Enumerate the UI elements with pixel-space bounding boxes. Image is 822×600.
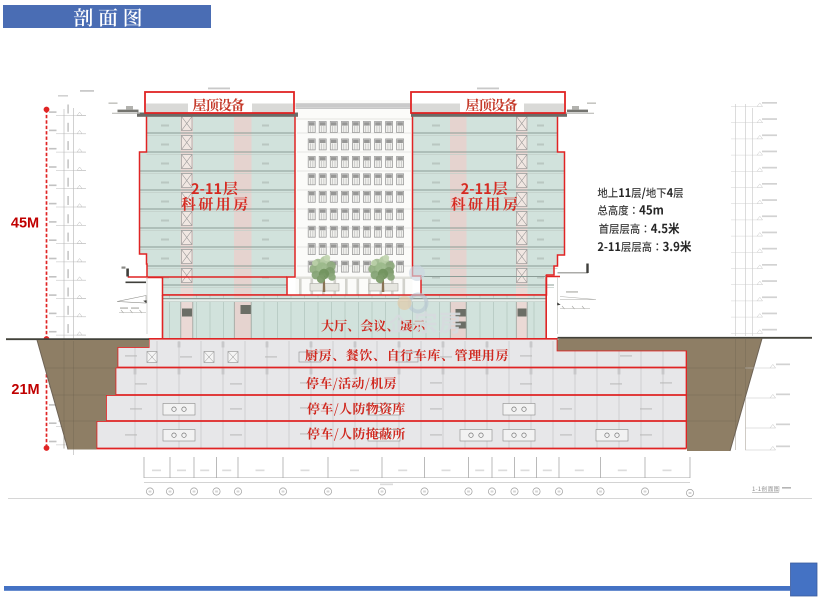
svg-text:45M: 45M <box>11 216 39 232</box>
svg-text:21M: 21M <box>11 382 39 398</box>
